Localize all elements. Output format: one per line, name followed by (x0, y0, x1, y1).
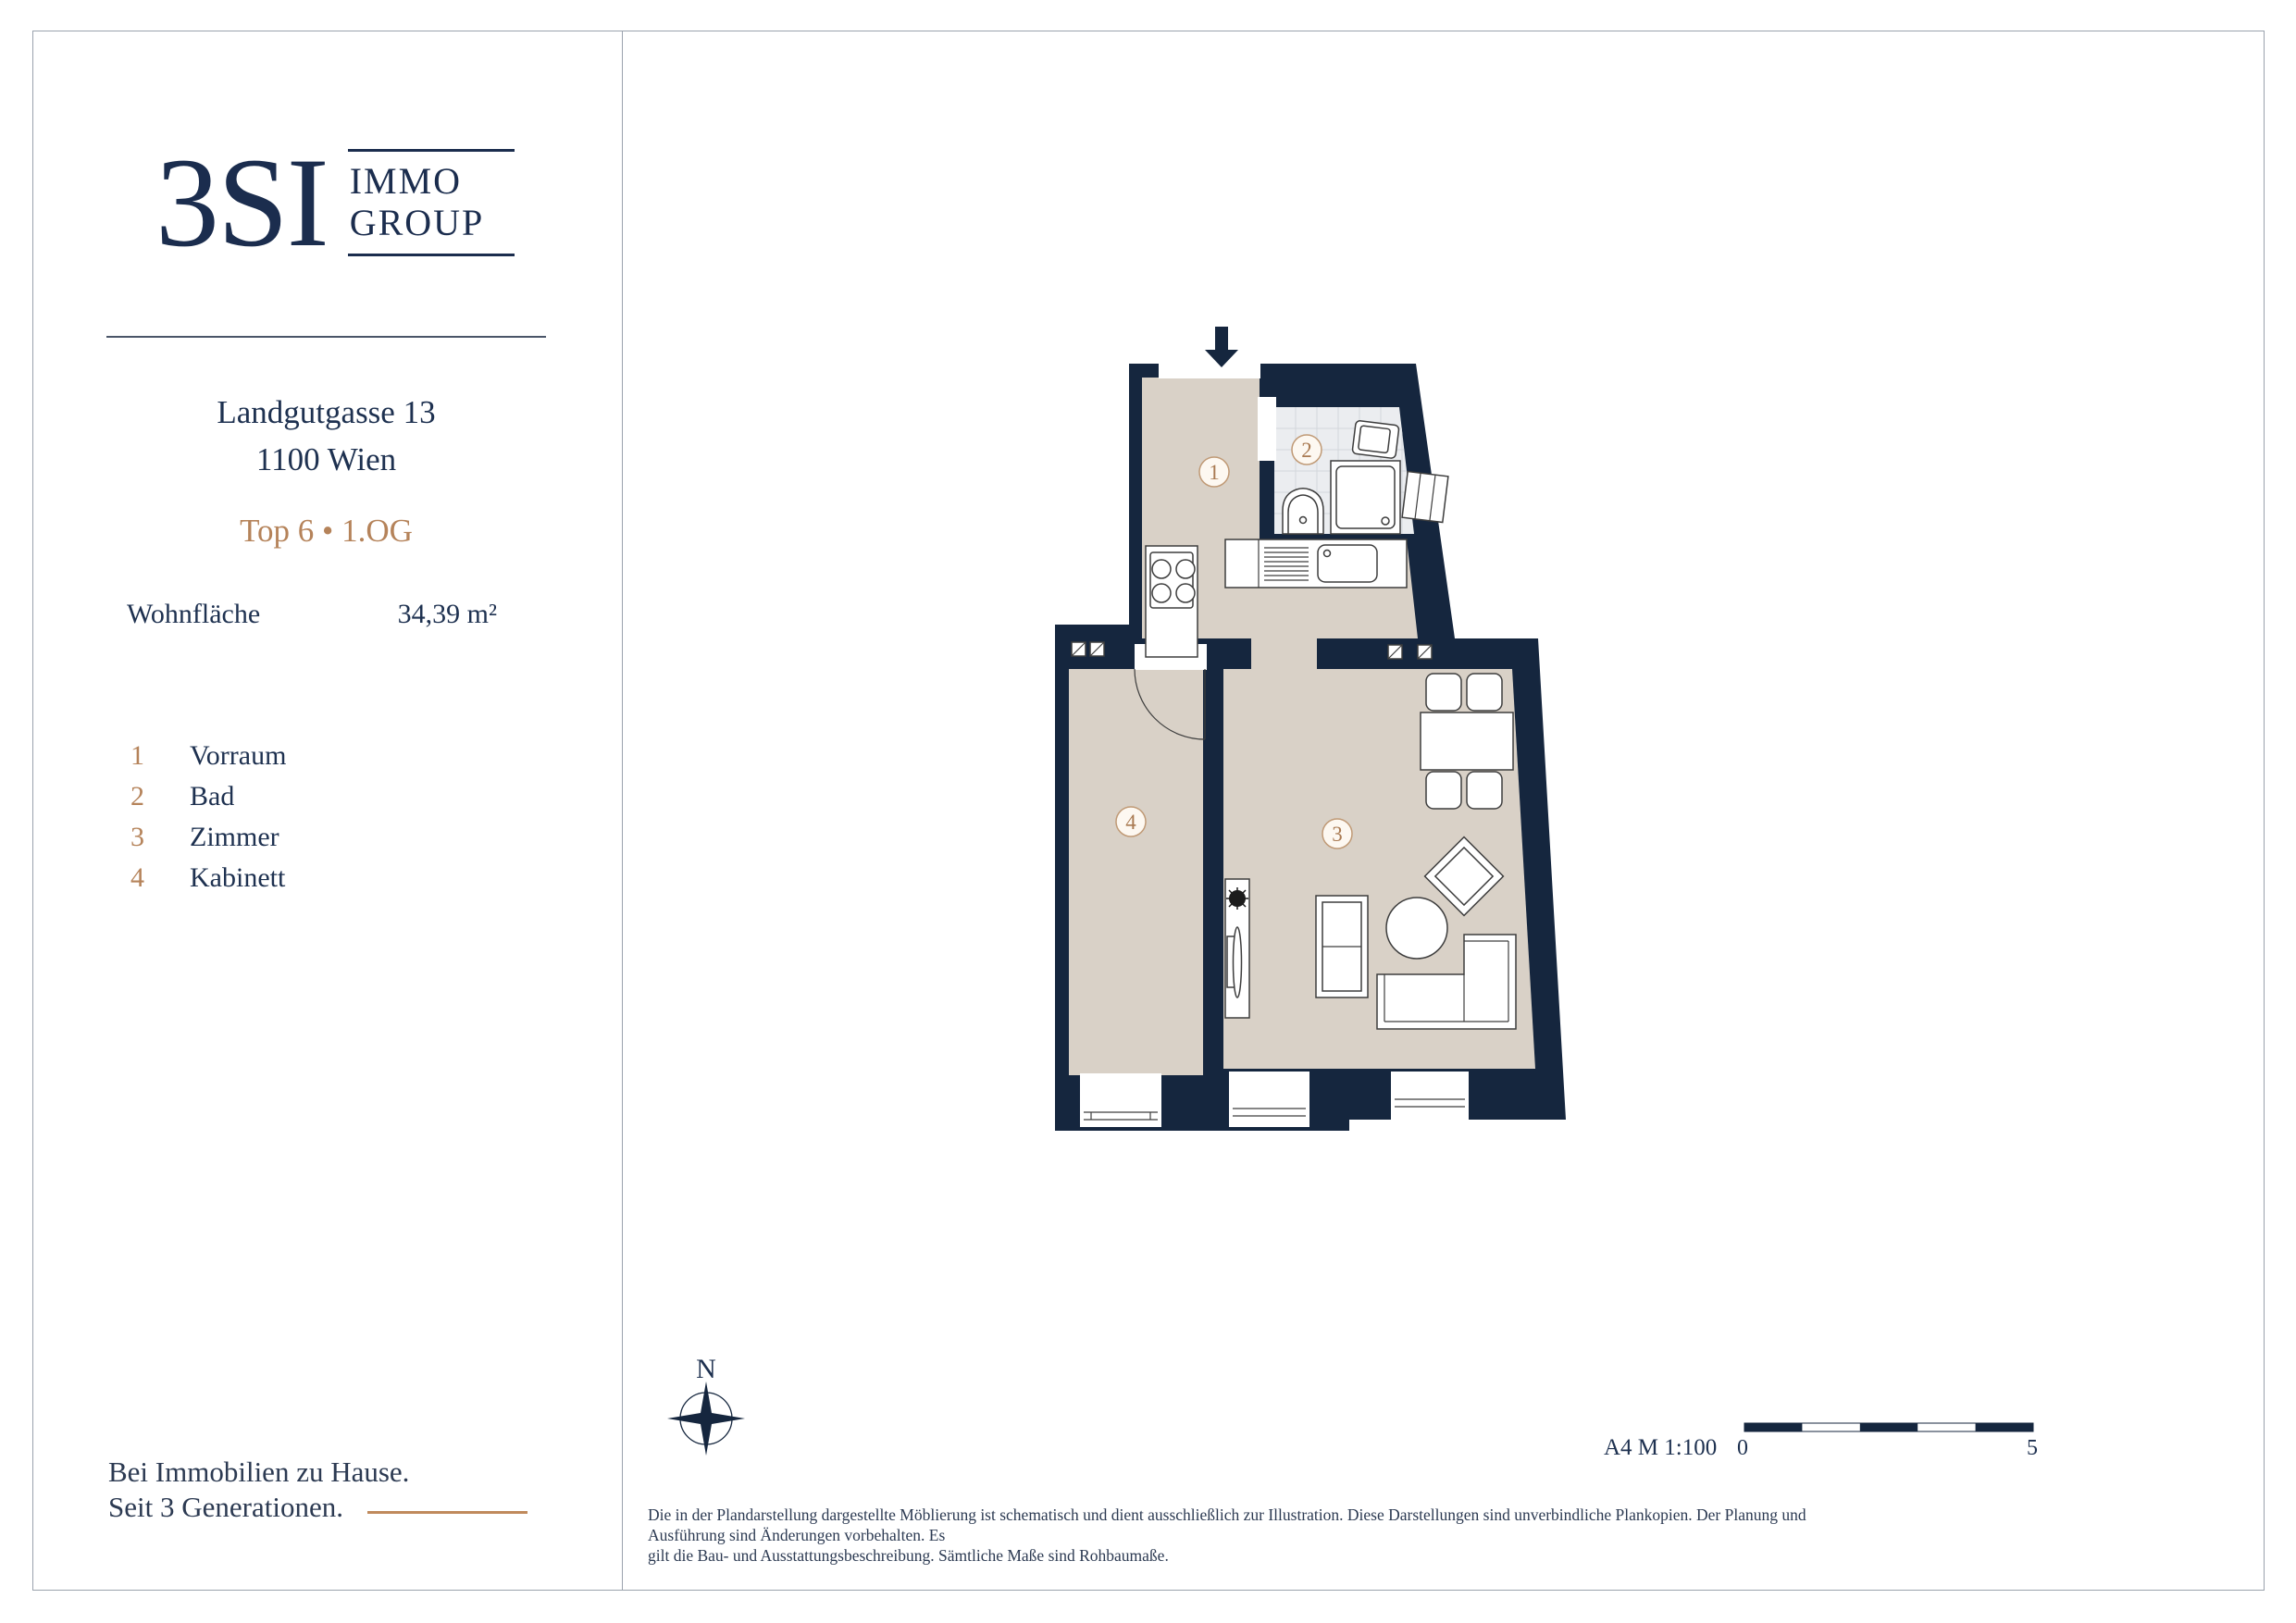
entrance-arrow-icon (1205, 327, 1238, 367)
bad-window (1402, 472, 1448, 523)
zimmer-window-right (1391, 1072, 1469, 1120)
round-table (1386, 898, 1447, 959)
dining-table-set (1421, 674, 1513, 809)
sofa-two-seater (1316, 896, 1368, 997)
compass-rose-icon: N (667, 1354, 745, 1456)
bath-sink (1283, 489, 1323, 534)
scale-bar: A4 M 1:100 0 5 (1604, 1423, 2038, 1460)
shower (1331, 461, 1400, 534)
zimmer-window-left (1229, 1072, 1309, 1127)
kitchen-counter (1225, 539, 1407, 588)
kabinett-window (1080, 1073, 1161, 1127)
scale-five-label: 5 (2027, 1436, 2038, 1460)
svg-text:1: 1 (1209, 461, 1220, 484)
svg-text:2: 2 (1301, 439, 1312, 462)
svg-text:4: 4 (1125, 811, 1136, 834)
floor-plan-canvas: 1 2 3 4 N A4 M 1:100 0 5 (0, 0, 2296, 1623)
scale-zero-label: 0 (1737, 1436, 1748, 1460)
room-label-2: 2 (1292, 435, 1322, 465)
floor-plan: 1 2 3 4 (1055, 327, 1566, 1131)
room-label-4: 4 (1116, 807, 1146, 836)
room-label-3: 3 (1322, 819, 1352, 849)
washing-machine (1352, 420, 1399, 458)
entrance-opening (1159, 362, 1260, 378)
passage-floor (1251, 638, 1317, 670)
stove (1146, 546, 1198, 657)
scale-note: A4 M 1:100 (1604, 1435, 1717, 1460)
bad-door-opening (1258, 397, 1276, 461)
svg-text:3: 3 (1332, 823, 1343, 846)
tv-board (1225, 879, 1249, 1018)
tv-icon (1234, 927, 1242, 997)
kabinett-floor (1069, 669, 1203, 1075)
room-label-1: 1 (1199, 457, 1229, 487)
svg-text:N: N (696, 1354, 716, 1384)
